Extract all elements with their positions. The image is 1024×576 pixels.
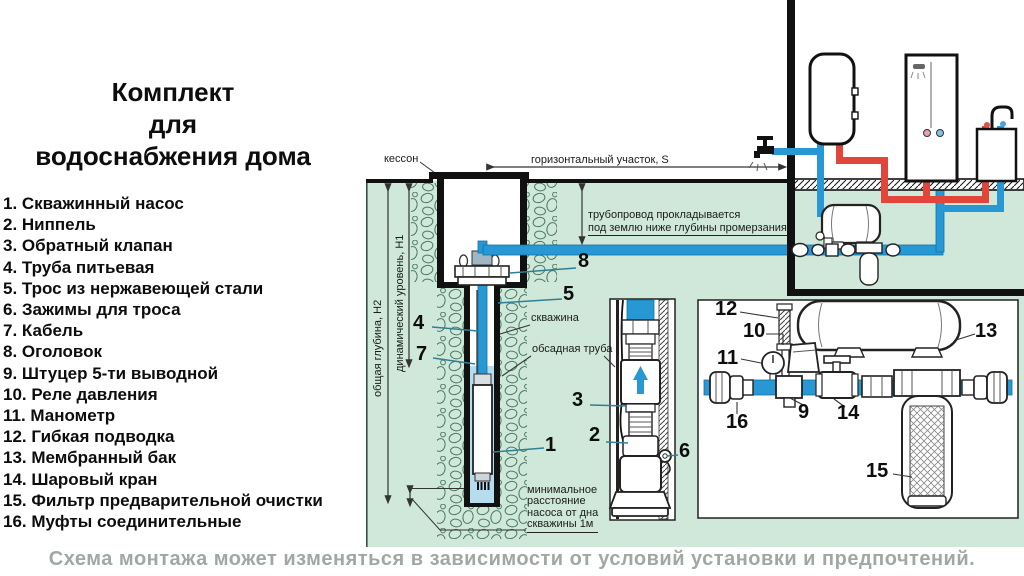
callout-14: 14 [837,403,859,423]
pump-body-detail [620,456,661,492]
label-dynamic-level: динамический уровень, Н1 [394,235,406,372]
cold-valve [937,130,944,137]
callout-13: 13 [975,321,997,341]
cold-pipe-tap [772,148,824,155]
pressure-relay [788,343,819,372]
gravel-right-of-caisson [527,183,557,282]
callout-15: 15 [866,461,888,481]
gravel-left-of-well [437,284,464,506]
callout-1: 1 [545,435,556,455]
callout-6: 6 [679,441,690,461]
shower-cabin [906,55,957,181]
callout-11: 11 [717,348,738,368]
flexible-hose [779,310,790,344]
label-total-depth: общая глубина, Н2 [372,300,384,397]
callout-4: 4 [413,313,424,333]
footer-caption: Схема монтажа может изменяться в зависим… [0,548,1024,571]
callout-3: 3 [572,390,583,410]
screenshot-root: Комплект для водоснабжения дома 1. Скваж… [0,0,1024,576]
label-caisson: кессон [384,153,418,165]
sink [977,107,1016,181]
shower-head-icon [913,64,925,69]
label-casing-pipe: обсадная труба [532,343,612,355]
well-pump [473,374,492,490]
gravel-right-of-well [500,284,527,506]
callout-10: 10 [743,321,765,341]
callout-16: 16 [726,412,748,432]
pump-detail-inset [610,299,675,520]
label-min-distance: минимальное расстояние насоса от дна скв… [527,485,598,533]
diagram-canvas [0,0,1024,576]
callout-5: 5 [563,284,574,304]
outdoor-tap [749,136,774,171]
label-horizontal-section: горизонтальный участок, S [531,154,669,166]
label-pipeline-note: трубопровод прокладывается под землю ниж… [588,209,787,236]
gravel-below-well [437,506,527,539]
basement-filter [860,253,878,285]
callout-8: 8 [578,251,589,271]
gravel-left-of-caisson [411,183,437,282]
membrane-tank-basement [822,205,880,243]
hot-valve [924,130,931,137]
callout-7: 7 [416,344,427,364]
membrane-tank [798,301,960,350]
label-borehole: скважина [531,312,579,324]
callout-12: 12 [715,299,737,319]
callout-2: 2 [589,425,600,445]
pre-filter [894,370,960,508]
caisson-lid [429,172,529,179]
boiler [810,54,858,144]
basement-floor [787,289,1024,296]
callout-9: 9 [798,402,809,422]
